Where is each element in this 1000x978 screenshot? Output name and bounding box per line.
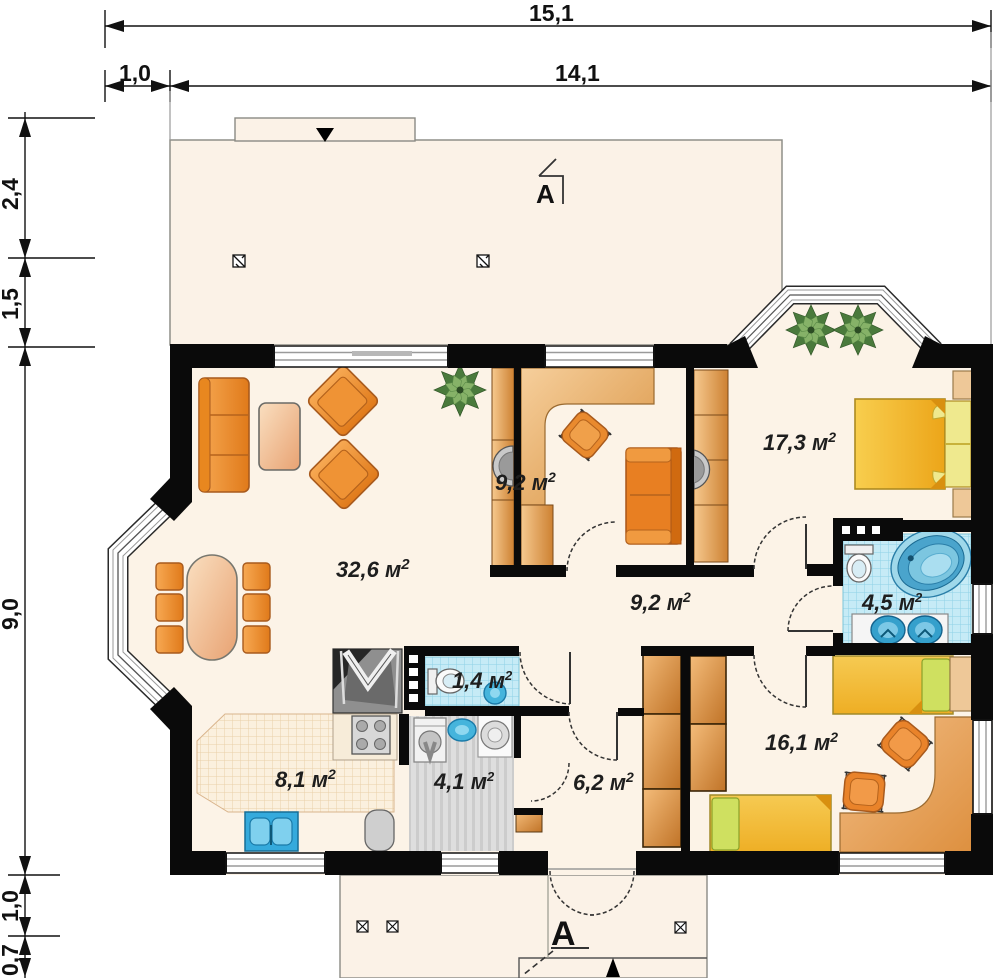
svg-text:1,4 м2: 1,4 м2: [452, 668, 513, 693]
svg-text:0,7: 0,7: [0, 944, 23, 976]
svg-text:9,2 м2: 9,2 м2: [495, 469, 556, 495]
svg-text:A: A: [536, 179, 555, 209]
svg-text:15,1: 15,1: [529, 0, 574, 26]
svg-text:8,1 м2: 8,1 м2: [275, 766, 336, 792]
svg-text:1,0: 1,0: [119, 60, 151, 86]
svg-text:9,0: 9,0: [0, 598, 23, 630]
svg-text:2,4: 2,4: [0, 178, 23, 210]
svg-text:6,2 м2: 6,2 м2: [573, 769, 634, 795]
svg-text:1,5: 1,5: [0, 288, 23, 320]
svg-text:1,0: 1,0: [0, 890, 23, 922]
svg-text:4,1 м2: 4,1 м2: [433, 769, 495, 794]
svg-text:17,3 м2: 17,3 м2: [763, 429, 836, 455]
svg-text:16,1 м2: 16,1 м2: [765, 729, 838, 755]
svg-text:14,1: 14,1: [555, 60, 600, 86]
svg-text:32,6 м2: 32,6 м2: [336, 556, 410, 582]
svg-text:4,5 м2: 4,5 м2: [861, 590, 923, 615]
svg-text:9,2 м2: 9,2 м2: [630, 589, 691, 615]
